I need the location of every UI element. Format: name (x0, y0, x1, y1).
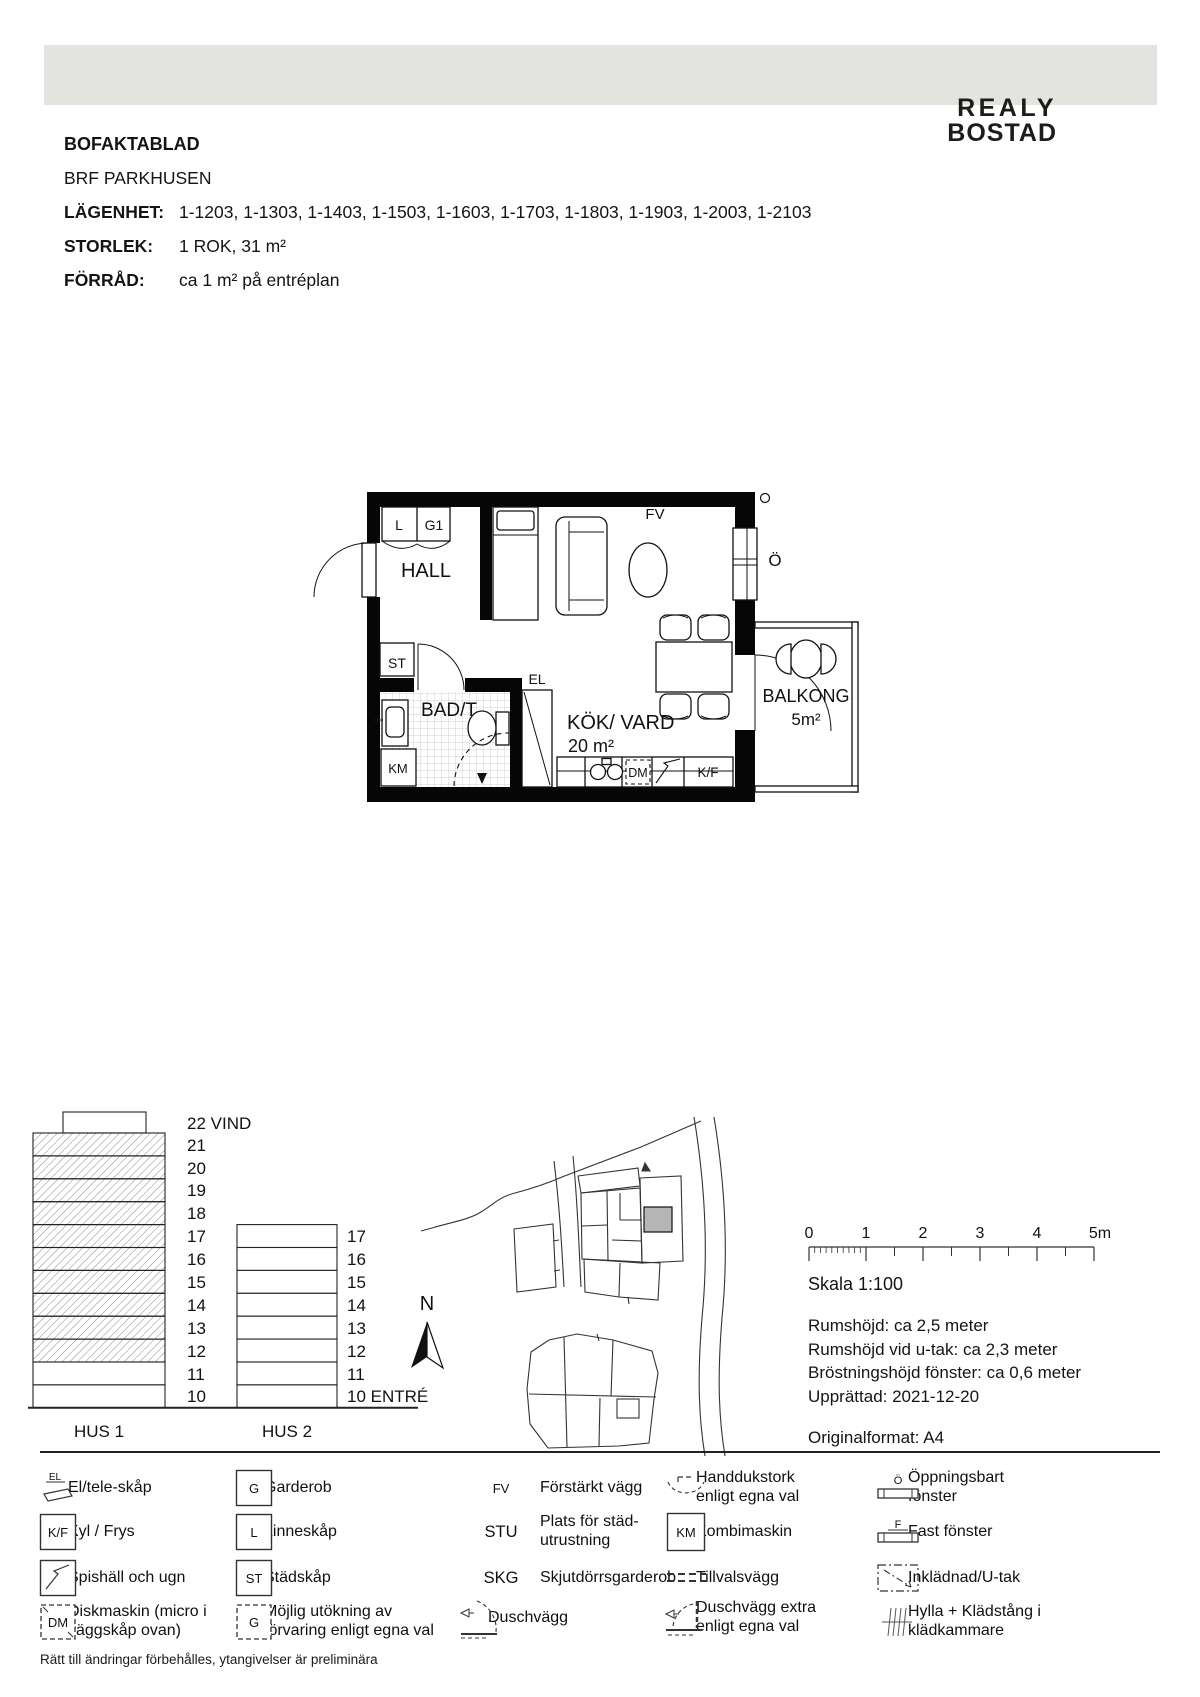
floor-label: 22 VIND (187, 1114, 251, 1133)
svg-text:EL: EL (49, 1472, 62, 1483)
legend-label: Kyl / Frys (68, 1523, 218, 1542)
legend-item-el-tele: EL El/tele-skåp (58, 1468, 218, 1508)
legend-item-handdukstork: Handdukstork enligt egna val (686, 1468, 831, 1508)
legend-label: Garderob (264, 1479, 424, 1498)
legend-label: Inklädnad/U-tak (908, 1569, 1058, 1588)
hus1-elevation (33, 1112, 165, 1408)
room-label-kok: KÖK/ VARD (567, 712, 674, 734)
svg-text:K/F: K/F (48, 1525, 68, 1540)
page-title: BOFAKTABLAD (64, 134, 1114, 155)
kok-area-label: 20 m² (568, 736, 614, 756)
floor-label: 15 (347, 1273, 366, 1292)
svg-text:G: G (249, 1481, 259, 1496)
hus2-elevation (237, 1225, 337, 1408)
floor-label: 11 (187, 1365, 205, 1384)
legend-divider (40, 1451, 1160, 1453)
hus1-name: HUS 1 (74, 1422, 124, 1441)
legend-item-oppningsbart: Ö Öppningsbart fönster (898, 1468, 1028, 1508)
legend-item-duschvagg: Duschvägg (478, 1598, 608, 1638)
info-row-lagenhet: LÄGENHET: 1-1203, 1-1303, 1-1403, 1-1503… (64, 202, 1114, 223)
north-arrow: N (411, 1293, 443, 1368)
svg-text:DM: DM (48, 1615, 68, 1630)
floor-label: 17 (347, 1227, 366, 1246)
highlighted-unit (644, 1207, 672, 1232)
legend-label: Handdukstork enligt egna val (696, 1469, 831, 1506)
balcony-table (790, 640, 822, 678)
site-plan (421, 1117, 725, 1456)
floor-label: 21 (187, 1136, 206, 1155)
floor-label: 18 (187, 1204, 206, 1223)
header-band: REALY BOSTAD (44, 45, 1157, 105)
road-line (714, 1117, 725, 1456)
el-closet (522, 690, 552, 787)
floor-label: 10 ENTRÉ (347, 1387, 428, 1406)
floor-label: 14 (187, 1296, 206, 1315)
scale-caption: Skala 1:100 (808, 1274, 903, 1295)
floor-label: 15 (187, 1273, 206, 1292)
info-value: ca 1 m² på entréplan (179, 270, 340, 291)
legend-label: Diskmaskin (micro i väggskåp ovan) (68, 1603, 233, 1640)
info-row-forrad: FÖRRÅD: ca 1 m² på entréplan (64, 270, 1114, 291)
svg-text:G: G (249, 1615, 259, 1630)
legend-label: Duschvägg extra enligt egna val (696, 1599, 846, 1636)
legend-label: Duschvägg (488, 1609, 608, 1628)
lower-building-cluster (527, 1334, 658, 1448)
dining-set (656, 615, 732, 719)
floor-label: 16 (347, 1250, 366, 1269)
sofa (556, 517, 607, 615)
legend-label: Hylla + Klädstång i klädkammare (908, 1603, 1068, 1640)
svg-text:ST: ST (246, 1571, 263, 1586)
legend-label: Möjlig utökning av förvaring enligt egna… (264, 1603, 449, 1640)
balcony-area-label: 5m² (791, 710, 821, 729)
legend-item-fast-fonster: F Fast fönster (898, 1512, 1048, 1552)
legend-item-forstarkt-vagg: FV Förstärkt vägg (472, 1468, 675, 1508)
window-label-o: Ö (768, 551, 781, 570)
tick-label: 1 (862, 1225, 871, 1242)
room-label-hall: HALL (401, 560, 451, 582)
closet-label-g1: G1 (425, 517, 444, 533)
closet-label-l: L (395, 517, 403, 533)
scale-bar (809, 1247, 1094, 1261)
detail-line: Rumshöjd: ca 2,5 meter (808, 1314, 1081, 1338)
svg-text:F: F (895, 1519, 902, 1531)
info-row-storlek: STORLEK: 1 ROK, 31 m² (64, 236, 1114, 257)
machine-label-km: KM (388, 761, 408, 776)
detail-line: Rumshöjd vid u-tak: ca 2,3 meter (808, 1338, 1081, 1362)
floor-label: 12 (187, 1342, 206, 1361)
interior-door (418, 644, 464, 690)
closet-label-el: EL (528, 671, 545, 687)
bed (493, 507, 538, 620)
legend-item-garderob: G Garderob (254, 1468, 424, 1508)
coffee-table (629, 543, 667, 597)
legend-item-stu: STU Plats för städ-utrustning (472, 1512, 658, 1552)
legend-label: Förstärkt vägg (540, 1479, 675, 1498)
original-format: Originalformat: A4 (808, 1428, 944, 1448)
brand-logo-line1: REALY (947, 96, 1057, 121)
floor-label: 11 (347, 1365, 365, 1384)
detail-line: Upprättad: 2021-12-20 (808, 1385, 1081, 1409)
legal-footnote: Rätt till ändringar förbehålles, ytangiv… (40, 1652, 378, 1667)
wall-label-fv: FV (645, 506, 664, 523)
skg-abbr: SKG (472, 1569, 530, 1588)
floor-label: 14 (347, 1296, 366, 1315)
legend-item-tillvalsvagg: Tillvalsvägg (686, 1558, 836, 1598)
legend-label: Kombimaskin (696, 1523, 836, 1542)
info-value: 1-1203, 1-1303, 1-1403, 1-1503, 1-1603, … (179, 202, 811, 223)
closet-label-st: ST (388, 655, 406, 671)
detail-line: Bröstningshöjd fönster: ca 0,6 meter (808, 1361, 1081, 1385)
legend-item-hylla: Hylla + Klädstång i klädkammare (898, 1602, 1068, 1642)
info-label: FÖRRÅD: (64, 270, 179, 291)
balcony (755, 622, 858, 792)
balcony-chair-left (776, 644, 791, 674)
upper-building-cluster (578, 1163, 683, 1304)
svg-text:Ö: Ö (894, 1475, 903, 1487)
info-label: STORLEK: (64, 236, 179, 257)
info-value: 1 ROK, 31 m² (179, 236, 286, 257)
legend-item-linneskap: L Linneskåp (254, 1512, 424, 1552)
bofaktablad-page: REALY BOSTAD BOFAKTABLAD BRF PARKHUSEN L… (0, 0, 1200, 1697)
hus2-floor-labels: 17 16 15 14 13 12 11 10 ENTRÉ (347, 1227, 428, 1406)
entry-door (314, 543, 376, 597)
floor-label: 13 (347, 1319, 366, 1338)
floor-label: 19 (187, 1181, 206, 1200)
machine-label-kf: K/F (697, 765, 718, 780)
floor-label: 16 (187, 1250, 206, 1269)
road-line (694, 1117, 705, 1456)
legend-item-spishall: Spishäll och ugn (58, 1558, 228, 1598)
legend-item-diskmaskin: DM Diskmaskin (micro i väggskåp ovan) (58, 1602, 233, 1642)
legend-label: Tillvalsvägg (696, 1569, 836, 1588)
legend-label: Linneskåp (264, 1523, 424, 1542)
scale-tick-labels: 0 1 2 3 4 5m (805, 1225, 1112, 1242)
legend-item-mojlig-utokning: G Möjlig utökning av förvaring enligt eg… (254, 1602, 449, 1642)
balcony-chair-right (821, 644, 836, 674)
info-label: LÄGENHET: (64, 202, 179, 223)
svg-text:L: L (250, 1525, 257, 1540)
project-name: BRF PARKHUSEN (64, 168, 1114, 189)
tick-label: 3 (976, 1225, 985, 1242)
corner-marker-circle (761, 494, 770, 503)
floor-plan-drawing: HALL L G1 ST BAD/T EL KM DM K/F FV Ö BAL… (280, 485, 880, 815)
legend-item-duschvagg-extra: Duschvägg extra enligt egna val (686, 1598, 846, 1638)
fv-abbr: FV (472, 1481, 530, 1496)
floor-label: 20 (187, 1159, 206, 1178)
legend-item-kombimaskin: KM Kombimaskin (686, 1512, 836, 1552)
room-label-balcony: BALKONG (762, 686, 849, 706)
floor-label: 13 (187, 1319, 206, 1338)
stu-abbr: STU (472, 1523, 530, 1542)
tick-label: 4 (1033, 1225, 1042, 1242)
legend-item-inkladnad: Inklädnad/U-tak (898, 1558, 1058, 1598)
legend-label: Spishäll och ugn (68, 1569, 228, 1588)
floor-label: 12 (347, 1342, 366, 1361)
legend-label: Fast fönster (908, 1523, 1048, 1542)
floor-label: 17 (187, 1227, 206, 1246)
svg-text:KM: KM (676, 1525, 696, 1540)
north-label: N (420, 1293, 434, 1315)
machine-label-dm: DM (628, 766, 647, 780)
legend-label: El/tele-skåp (68, 1479, 218, 1498)
tick-label: 5m (1089, 1225, 1111, 1242)
legend-item-stadskap: ST Städskåp (254, 1558, 424, 1598)
details-block: Rumshöjd: ca 2,5 meter Rumshöjd vid u-ta… (808, 1314, 1081, 1409)
window (733, 528, 757, 600)
room-label-bad: BAD/T (421, 700, 477, 721)
floor-label: 10 (187, 1387, 206, 1406)
hus2-name: HUS 2 (262, 1422, 312, 1441)
tick-label: 0 (805, 1225, 814, 1242)
info-block: BOFAKTABLAD BRF PARKHUSEN LÄGENHET: 1-12… (64, 134, 1114, 304)
building-outline (514, 1224, 556, 1292)
legend-label: Plats för städ-utrustning (540, 1513, 658, 1550)
legend-label: Städskåp (264, 1569, 424, 1588)
tick-label: 2 (919, 1225, 928, 1242)
legend-item-kyl-frys: K/F Kyl / Frys (58, 1512, 218, 1552)
legend-label: Öppningsbart fönster (908, 1469, 1028, 1506)
